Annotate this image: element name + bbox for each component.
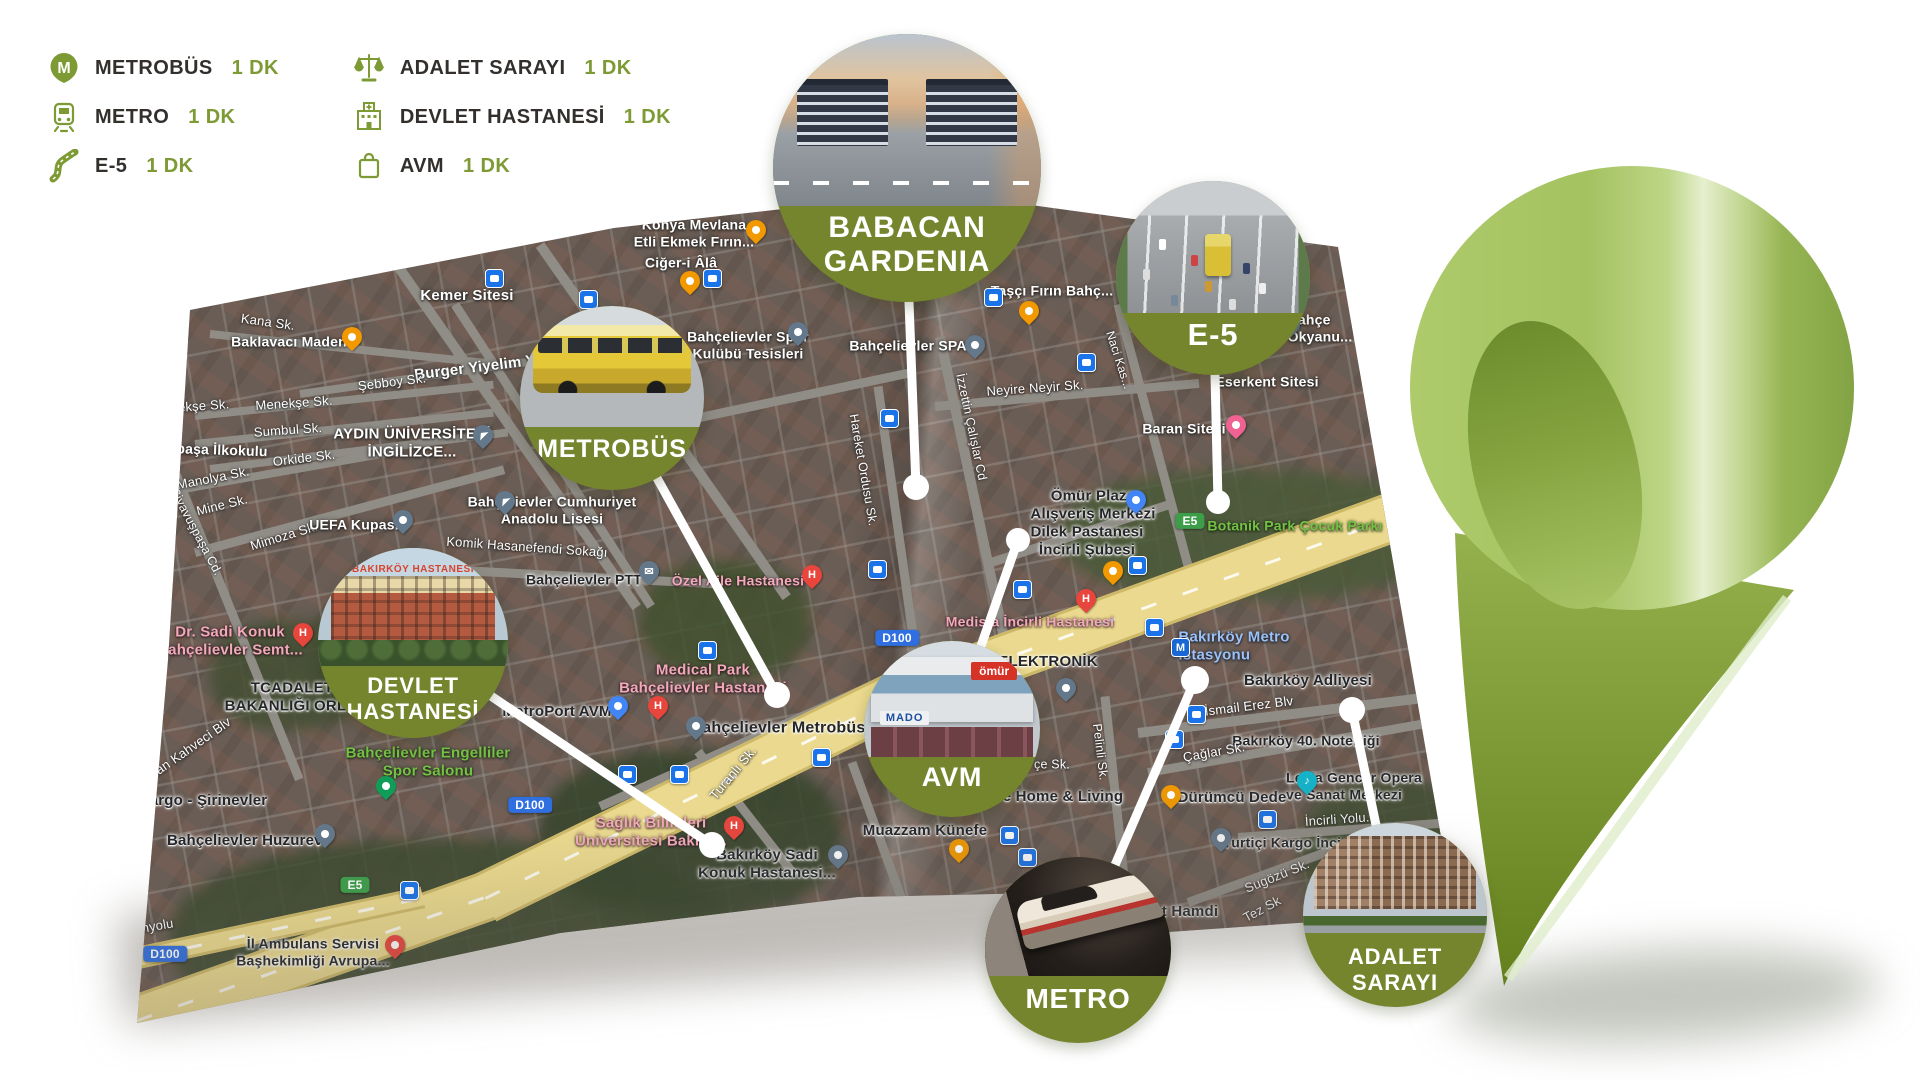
- callout-photo-adalet: [1303, 823, 1487, 933]
- map-label-sağlık-bilimleri-üniversitesi-bakırk: Sağlık Bilimleri Üniversitesi Bakırk...: [575, 814, 727, 849]
- map-label-e5: E5: [340, 877, 369, 893]
- photo-caption-mado: MADO: [880, 711, 930, 725]
- legend-time: 1 DK: [188, 106, 235, 129]
- callout-photo-e5: [1116, 181, 1310, 313]
- map-label-muazzam-künefe: Muazzam Künefe: [863, 822, 988, 840]
- photo-caption-ömür: ömür: [971, 662, 1017, 680]
- map-pin-transit: [1000, 826, 1019, 845]
- pin-glyph: H: [293, 623, 313, 643]
- legend-item-e-5: E-51 DK: [46, 148, 279, 184]
- map-label-çe-sk: çe Sk.: [1034, 758, 1070, 773]
- map-label-eserkent-sitesi: Eserkent Sitesi: [1215, 374, 1318, 391]
- callout-metro: METRO: [985, 857, 1171, 1043]
- map-label-bakırköy-sadi-konuk-hastanesi: Bakırköy Sadi Konuk Hastanesi...: [698, 846, 836, 881]
- map-label-medical-park-bahçelievler-hastanesi: Medical Park Bahçelievler Hastanesi: [619, 661, 787, 696]
- map-label-tez-sk: Tez Sk: [1241, 893, 1284, 925]
- map-pin-pink: [1222, 411, 1250, 439]
- legend-label: ADALET SARAYI: [400, 57, 566, 80]
- callout-avm: ömürMADOAVM: [864, 641, 1040, 817]
- legend-label: DEVLET HASTANESİ: [400, 106, 605, 129]
- map-pin-transit: [400, 881, 419, 900]
- pin-glyph: H: [724, 816, 744, 836]
- svg-text:M: M: [57, 60, 70, 77]
- map-label-kargo-şirinevler: Kargo - Şirinevler: [139, 792, 268, 810]
- callout-photo-metro: [985, 857, 1171, 976]
- map-label-d100: D100: [143, 946, 187, 962]
- map-label-d100: D100: [508, 797, 552, 813]
- map-pin-red-h: H: [720, 812, 748, 840]
- map-pin-transit: [698, 641, 717, 660]
- callout-label-babacan: BABACAN GARDENIA: [784, 211, 1031, 280]
- map-label-nan-kahveci-blv: nan Kahveci Blv: [146, 714, 234, 782]
- callout-adalet: ADALET SARAYI: [1303, 823, 1487, 1007]
- map-label-bakırköy-metro-i-stasyonu: Bakırköy Metro İstasyonu: [1178, 628, 1289, 663]
- callout-label-e5: E-5: [1124, 317, 1303, 353]
- map-pin-transit: [868, 560, 887, 579]
- map-label-bahçelievler-spa: Bahçelievler SPA: [849, 338, 966, 355]
- callout-photo-avm: ömürMADO: [864, 641, 1040, 757]
- callout-label-devlet: DEVLET HASTANESİ: [326, 673, 501, 724]
- map-pin-red-h: H: [644, 692, 672, 720]
- callout-label-avm: AVM: [871, 762, 1033, 793]
- map-pin-slate-mail: ✉: [635, 557, 663, 585]
- map-pin-transit: [1258, 810, 1277, 829]
- legend-label: AVM: [400, 155, 444, 178]
- pin-glyph: H: [1076, 589, 1096, 609]
- callout-photo-devlet: BAKIRKÖY HASTANESİ: [318, 548, 508, 666]
- map-label-kemer-sitesi: Kemer Sitesi: [420, 287, 513, 305]
- map-pin-transit: [1077, 353, 1096, 372]
- metrobus-icon: M: [46, 50, 82, 86]
- map-label-dürümcü-dede: Dürümcü Dede: [1177, 789, 1286, 807]
- map-pin-transit: [1187, 705, 1206, 724]
- map-label-aydin-üni-versi-tesi-i-ngi-li-zce: AYDIN ÜNİVERSİTESİ İNGİLİZCE...: [333, 425, 490, 460]
- legend-item-adalet-sarayi: ADALET SARAYI1 DK: [351, 50, 671, 86]
- photo-caption-bakirköy-hastanesi: BAKIRKÖY HASTANESİ: [352, 564, 474, 575]
- map-label-menekşe-sk: Menekşe Sk.: [255, 393, 333, 414]
- callout-label-metro: METRO: [992, 983, 1163, 1015]
- map-pin-transit: [1013, 580, 1032, 599]
- map-label-e5: E5: [1175, 513, 1204, 529]
- justice-scales-icon: [351, 50, 387, 86]
- legend-label: METROBÜS: [95, 57, 213, 80]
- map-label-uefa-kupası: UEFA Kupası: [309, 517, 399, 534]
- legend-label: E-5: [95, 155, 127, 178]
- map-label-dr-sadi-konuk-bahçelievler-semt: Dr. Sadi Konuk Bahçelievler Semt...: [157, 623, 303, 658]
- callout-metrobus: METROBÜS: [520, 306, 704, 490]
- callout-e5: E-5: [1116, 181, 1310, 375]
- legend-time: 1 DK: [584, 57, 631, 80]
- map-label-baran-sitesi: Baran Sitesi: [1142, 421, 1225, 438]
- map-pin-transit: [880, 409, 899, 428]
- map-label-baklavacı-maden: Baklavacı Maden: [231, 334, 347, 351]
- legend-item-devlet-hastanesi: DEVLET HASTANESİ1 DK: [351, 99, 671, 135]
- legend-item-metrobüs: MMETROBÜS1 DK: [46, 50, 279, 86]
- legend: MMETROBÜS1 DKMETRO1 DKE-51 DKADALET SARA…: [46, 50, 671, 184]
- hospital-icon: [351, 99, 387, 135]
- pin-glyph: ✉: [639, 561, 659, 581]
- map-pin-transit: [1145, 618, 1164, 637]
- legend-time: 1 DK: [463, 155, 510, 178]
- map-pin-transit: [485, 269, 504, 288]
- map-label-medista-i-ncirli-hastanesi: Medista İncirli Hastanesi: [946, 614, 1114, 631]
- legend-time: 1 DK: [146, 155, 193, 178]
- callout-label-metrobus: METROBÜS: [527, 435, 696, 464]
- map-pin-transit: [984, 288, 1003, 307]
- map-label-botanik-park-çocuk-parkı: Botanik Park Çocuk Parkı: [1207, 518, 1382, 535]
- map-pin-red-h: H: [798, 561, 826, 589]
- map-label-bakırköy-adliyesi: Bakırköy Adliyesi: [1244, 672, 1372, 690]
- map-label-sumbul-sk: Sumbul Sk.: [253, 420, 322, 440]
- map-label-kana-sk: Kana Sk.: [240, 311, 296, 334]
- map-label-bahçelievler-engelliler-spor-salonu: Bahçelievler Engelliler Spor Salonu: [346, 744, 511, 779]
- map-pin-red-h: H: [1072, 585, 1100, 613]
- legend-time: 1 DK: [624, 106, 671, 129]
- callout-devlet: BAKIRKÖY HASTANESİDEVLET HASTANESİ: [318, 548, 508, 738]
- map-label-bahçelievler-ptt: Bahçelievler PTT: [526, 572, 642, 589]
- map-label-bahçelievler-cumhuriyet-anadolu-lisesi: Bahçelievler Cumhuriyet Anadolu Lisesi: [468, 493, 637, 526]
- map-label-metroport-avm: MetroPort AVM: [502, 703, 611, 721]
- map-label-paşa-i-lkokulu: paşa İlkokulu: [176, 440, 268, 460]
- pin-glyph: H: [648, 696, 668, 716]
- pin-glyph: ♪: [1297, 771, 1317, 791]
- map-pin-transit: [812, 748, 831, 767]
- map-label-bahçelievler-metrobüs: Bahçelievler Metrobüs: [691, 720, 866, 739]
- map-pin-transit: [1128, 556, 1147, 575]
- legend-item-avm: AVM1 DK: [351, 148, 671, 184]
- callout-babacan: BABACAN GARDENIA: [773, 34, 1041, 302]
- page: Kana Sk.Baklavacı MadenKemer SitesiBurge…: [0, 0, 1920, 1080]
- map-label-taşçı-fırın-bahç: Taşçı Fırın Bahç...: [991, 283, 1114, 300]
- metro-icon: [46, 99, 82, 135]
- map-label-dilek-pastanesi-i-ncirli-şubesi: Dilek Pastanesi İncirli Şubesi: [1030, 523, 1143, 558]
- legend-time: 1 DK: [232, 57, 279, 80]
- shopping-bag-icon: [351, 148, 387, 184]
- legend-item-metro: METRO1 DK: [46, 99, 279, 135]
- e5-road-icon: [46, 148, 82, 184]
- map-label-özel-aile-hastanesi: Özel Aile Hastanesi: [672, 573, 804, 590]
- map-label-bakırköy-40-noterliği: Bakırköy 40. Noterliği: [1232, 733, 1380, 750]
- pin-glyph: H: [802, 565, 822, 585]
- map-pin-transit: [670, 765, 689, 784]
- map-pin-transit: [618, 765, 637, 784]
- map-pin-blue-m: M: [1171, 638, 1190, 657]
- legend-label: METRO: [95, 106, 169, 129]
- map-pin-teal: ♪: [1293, 767, 1321, 795]
- map-pin-transit: [703, 269, 722, 288]
- map-pin-orange: [1015, 297, 1043, 325]
- map-label-bahçelievler-huzurevi: Bahçelievler Huzurevi: [167, 832, 327, 850]
- legend-column-2: ADALET SARAYI1 DKDEVLET HASTANESİ1 DKAVM…: [351, 50, 671, 184]
- map-pin-transit: [1165, 730, 1184, 749]
- map-pin-slate: [1052, 674, 1080, 702]
- map-label-konya-mevlana-etli-ekmek-fırın: Konya Mevlana Etli Ekmek Fırın...: [634, 216, 755, 249]
- map-label-mine-sk: Mine Sk.: [195, 491, 249, 518]
- callout-photo-babacan: [773, 34, 1041, 206]
- legend-column-1: MMETROBÜS1 DKMETRO1 DKE-51 DK: [46, 50, 279, 184]
- callout-label-adalet: ADALET SARAYI: [1310, 944, 1479, 995]
- callout-photo-metrobus: [520, 306, 704, 427]
- map-label-i-l-ambulans-servisi-başhekimliği-avrupa: İl Ambulans Servisi Başhekimliği Avrupa.…: [236, 935, 390, 968]
- map-pin-red-h: H: [289, 619, 317, 647]
